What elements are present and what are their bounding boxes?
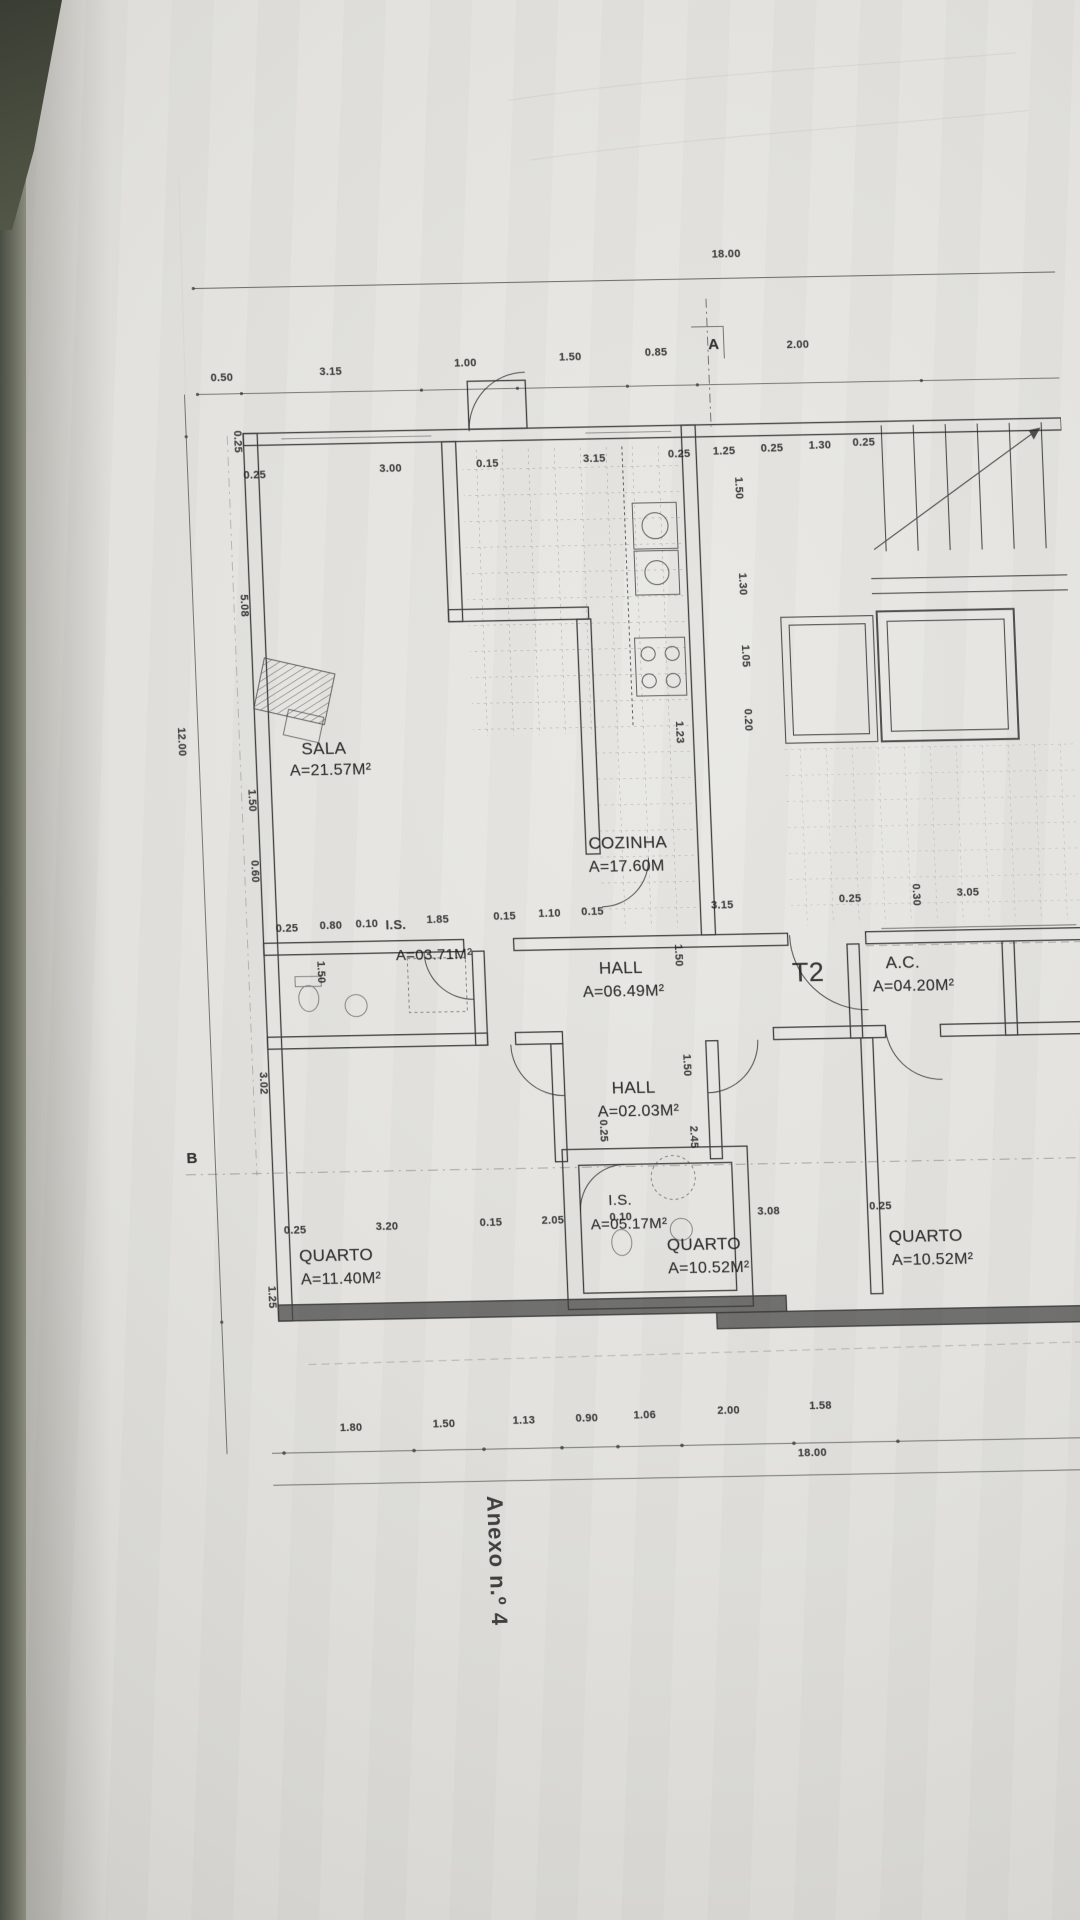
dim-right-side: 1.05 [739, 645, 752, 668]
dim-mid-right: 3.05 [956, 887, 979, 899]
dim-top-row: 0.50 [210, 372, 233, 384]
room-area-is1: A=03.71M² [396, 946, 473, 964]
dim-mid-right: 0.25 [839, 893, 862, 905]
dim-bottom-inner: 0.25 [284, 1225, 307, 1237]
room-area-quarto3: A=10.52M² [892, 1251, 974, 1271]
dim-right-side: 1.30 [736, 573, 749, 596]
photographed-floorplan: 18.00 18.00 12.00 0.50 3.15 1.00 1.50 0.… [0, 0, 1080, 1920]
dim-inner: 1.50 [314, 961, 327, 984]
room-area-cozinha: A=17.60M [588, 858, 665, 877]
dim-upper-inner: 0.25 [668, 448, 691, 460]
dim-bottom-inner: 3.08 [757, 1205, 780, 1217]
dim-inner: 0.25 [597, 1119, 610, 1142]
room-label-sala: SALA [301, 739, 346, 760]
dim-left-total: 12.00 [175, 727, 188, 756]
dim-upper-inner: 0.25 [243, 469, 266, 481]
dim-mid-center: 0.15 [493, 910, 516, 922]
dim-left-side: 3.02 [257, 1072, 270, 1095]
dim-upper-right: 1.25 [713, 445, 736, 457]
dim-upper-right: 1.30 [808, 439, 831, 451]
dim-mid-left: 0.10 [355, 918, 378, 930]
dim-upper-inner: 3.15 [583, 453, 606, 465]
dim-bottom-row: 1.58 [809, 1399, 832, 1411]
dim-bottom-inner: 0.25 [869, 1200, 892, 1212]
dim-mid-right: 3.15 [711, 899, 734, 911]
room-label-hall2: HALL [611, 1078, 656, 1099]
dim-left-side: 0.25 [231, 430, 244, 453]
floorplan-sheet: 18.00 18.00 12.00 0.50 3.15 1.00 1.50 0.… [0, 0, 1080, 1920]
section-marker-a: A [708, 336, 720, 353]
room-label-hall1: HALL [599, 958, 644, 979]
plan-type-t2: T2 [791, 957, 824, 989]
dim-bottom-total: 18.00 [798, 1447, 828, 1460]
dim-right-side: 0.20 [741, 709, 754, 732]
dim-mid-center: 1.10 [538, 908, 561, 920]
room-label-is1: I.S. [385, 917, 406, 932]
dim-left-side: 1.25 [265, 1286, 278, 1309]
dim-right-side: 1.50 [732, 477, 745, 500]
dim-left-side: 0.60 [248, 860, 261, 883]
dim-top-row: 2.00 [786, 339, 809, 351]
dim-bottom-row: 1.13 [512, 1414, 535, 1426]
room-area-quarto1: A=11.40M² [301, 1270, 382, 1290]
dim-top-total: 18.00 [711, 248, 741, 261]
room-label-quarto2: QUARTO [667, 1234, 742, 1255]
dim-left-side: 5.08 [238, 594, 251, 617]
dim-bottom-row: 1.80 [340, 1422, 363, 1434]
room-label-ac: A.C. [885, 953, 920, 974]
dim-left-side: 1.50 [245, 789, 258, 812]
dim-inner: 2.45 [687, 1126, 700, 1149]
annex-title: Anexo n.º 4 [481, 1496, 512, 1627]
dim-right-side: 0.30 [910, 883, 923, 906]
dim-top-row: 3.15 [319, 366, 342, 378]
dim-mid-center: 0.15 [581, 906, 604, 918]
dim-bottom-row: 1.50 [432, 1418, 455, 1430]
dim-upper-inner: 3.00 [379, 463, 402, 475]
dim-inner: 1.50 [672, 944, 685, 967]
room-area-quarto2: A=10.52M² [668, 1259, 750, 1279]
room-area-hall1: A=06.49M² [583, 983, 665, 1003]
dim-upper-inner: 0.15 [476, 458, 499, 470]
room-area-hall2: A=02.03M² [598, 1102, 680, 1122]
dim-top-row: 1.00 [454, 357, 477, 369]
dim-bottom-row: 0.90 [575, 1412, 598, 1424]
section-marker-b: B [186, 1150, 198, 1167]
dim-top-row: 0.85 [645, 346, 668, 358]
dim-upper-right: 0.25 [760, 442, 783, 454]
dim-bottom-inner: 3.20 [375, 1221, 398, 1233]
dim-bottom-row: 1.06 [633, 1409, 656, 1421]
dim-bottom-row: 2.00 [717, 1404, 740, 1416]
dim-inner: 1.50 [680, 1054, 693, 1077]
dim-inner: 1.23 [673, 721, 686, 744]
dim-mid-left: 1.85 [426, 914, 449, 926]
dim-mid-left: 0.80 [319, 920, 342, 932]
room-label-is2: I.S. [608, 1192, 632, 1209]
room-area-is2: A=05.17M² [590, 1215, 667, 1233]
room-label-quarto3: QUARTO [888, 1226, 963, 1247]
room-label-cozinha: COZINHA [588, 833, 667, 854]
dim-upper-right: 0.25 [852, 436, 875, 448]
room-label-quarto1: QUARTO [299, 1245, 374, 1266]
dim-bottom-inner: 2.05 [541, 1215, 564, 1227]
room-area-sala: A=21.57M² [290, 761, 372, 781]
dim-top-row: 1.50 [559, 351, 582, 363]
dim-bottom-inner: 0.15 [479, 1217, 502, 1229]
dim-mid-left: 0.25 [275, 923, 298, 935]
room-area-ac: A=04.20M² [873, 977, 955, 997]
